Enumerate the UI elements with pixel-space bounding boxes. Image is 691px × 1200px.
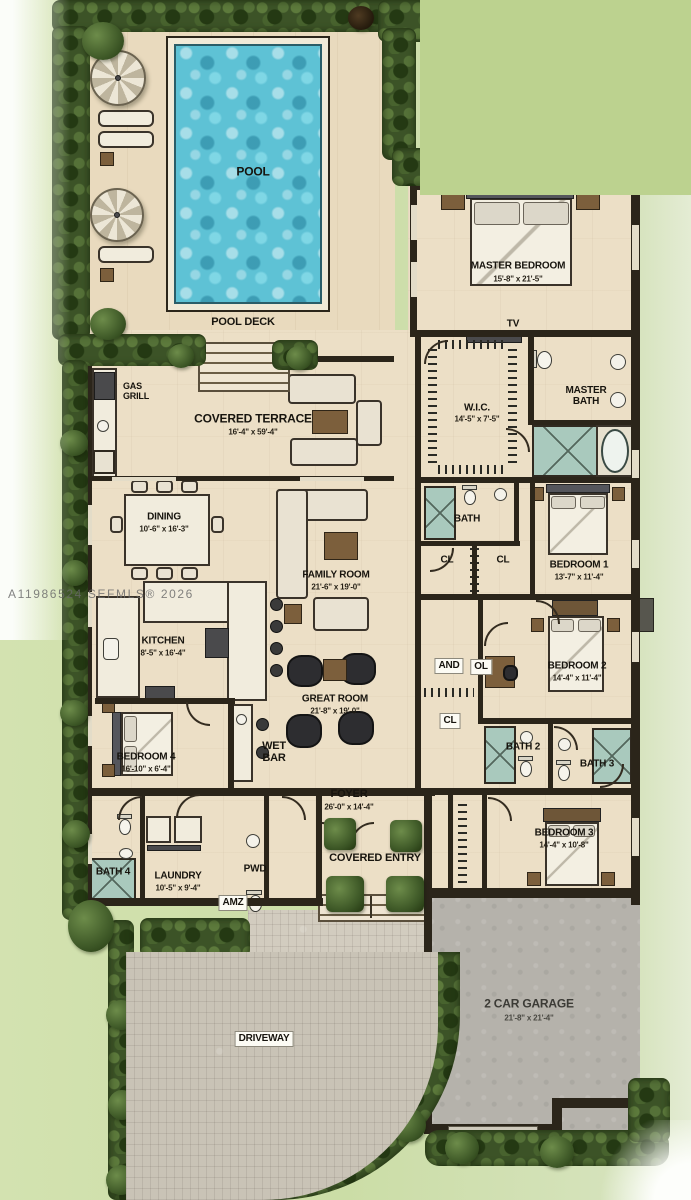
hedge-garage-corner	[628, 1078, 670, 1142]
window	[632, 225, 639, 270]
terrace-sofa	[290, 438, 358, 466]
window	[632, 818, 639, 856]
lounge-chair-3	[98, 246, 154, 263]
nightstand	[601, 872, 615, 886]
slider-door	[112, 477, 176, 481]
wall	[528, 420, 640, 425]
pillow	[580, 496, 605, 509]
terrace-chair	[356, 400, 382, 446]
nightstand	[102, 764, 115, 777]
pool-label: POOL	[236, 165, 269, 178]
wall	[448, 795, 453, 893]
bedroom3-label: BEDROOM 3	[535, 828, 594, 839]
slider-door	[300, 477, 364, 481]
wall	[548, 724, 553, 790]
dining-label: DINING	[147, 512, 181, 523]
dining-chair	[181, 480, 198, 493]
pillow	[578, 619, 601, 632]
lounge-chair-1	[98, 110, 154, 127]
cl-label-a: CL	[441, 555, 454, 566]
bedroom2-dims: 14'-4" x 11'-4"	[553, 675, 602, 684]
covered-terrace-label: COVERED TERRACE	[194, 412, 312, 425]
bush-garage-front-1	[445, 1132, 479, 1164]
floor-plan: AND OL CL	[0, 0, 691, 1200]
dining-chair	[181, 567, 198, 580]
lounge-chair-2	[98, 131, 154, 148]
bush-steps-left	[168, 344, 194, 368]
side-table-1	[100, 152, 114, 166]
great-room-table	[323, 659, 347, 681]
great-room-dims: 21'-8" x 19'-0"	[310, 708, 359, 717]
entry-planter	[326, 876, 364, 912]
window	[632, 540, 639, 568]
gas-grill-label: GAS GRILL	[123, 382, 149, 402]
bathtub	[601, 429, 629, 473]
swivel-chair	[286, 714, 322, 748]
wic-dims: 14'-5" x 7'-5"	[454, 416, 499, 425]
wet-bar-label: WET BAR	[262, 740, 286, 764]
bush-bath4-corner	[68, 900, 114, 952]
wall	[472, 546, 477, 594]
entry-planter	[386, 876, 424, 912]
nightstand	[441, 190, 465, 210]
dining-chair	[156, 480, 173, 493]
wall	[430, 788, 640, 795]
sink	[610, 392, 626, 408]
bath4-label: BATH 4	[96, 867, 130, 878]
bath2-label: BATH 2	[506, 742, 540, 753]
covered-terrace-dims: 16'-4" x 59'-4"	[228, 429, 277, 438]
bush-left-2	[62, 560, 88, 586]
kitchen-dims: 8'-5" x 16'-4"	[140, 650, 185, 659]
sink	[494, 488, 507, 501]
bush-garage-front-2	[540, 1136, 574, 1168]
foyer-label: FOYER	[331, 788, 368, 800]
dining-chair	[110, 516, 123, 533]
bar-stool	[256, 718, 269, 731]
pillow	[474, 202, 520, 225]
bath3-label: BATH 3	[580, 759, 614, 770]
wall	[264, 794, 269, 904]
toilet	[537, 351, 552, 369]
master-bedroom-label: MASTER BEDROOM	[471, 261, 565, 272]
wet-bar-sink	[236, 714, 247, 725]
toilet	[119, 819, 131, 835]
family-room-dims: 21'-6" x 19'-0"	[311, 584, 360, 593]
wall	[552, 1098, 640, 1108]
umbrella-2-pole	[114, 212, 120, 218]
covered-entry-label: COVERED ENTRY	[329, 852, 421, 864]
driveway-label: DRIVEWAY	[235, 1031, 294, 1047]
bedroom3-headboard	[543, 808, 601, 822]
wall	[415, 337, 421, 792]
mls-watermark: A11986524 SEFMLS® 2026	[8, 588, 194, 601]
swivel-chair	[287, 655, 323, 687]
terrace-table	[312, 410, 348, 434]
washer	[146, 816, 171, 843]
coffee-table	[324, 532, 358, 560]
bush-left-3	[60, 700, 88, 726]
tree-topright	[492, 0, 564, 46]
wall	[410, 330, 640, 337]
pwd-sink	[246, 834, 260, 848]
bedroom4-label: BEDROOM 4	[117, 752, 176, 763]
ol-closet-label: OL	[470, 659, 492, 675]
bush-steps-right	[286, 346, 312, 370]
laundry-label: LAUNDRY	[154, 871, 201, 882]
wic-hanger-rod	[438, 340, 506, 349]
nightstand	[607, 618, 620, 632]
bath4-sink	[119, 848, 133, 859]
wall	[85, 788, 435, 796]
hedge-above-master	[392, 148, 638, 186]
wall	[514, 483, 519, 543]
pillow	[124, 716, 137, 742]
bar-stool	[270, 620, 283, 633]
wall	[415, 477, 640, 483]
window	[632, 450, 639, 478]
sectional-sofa-left	[276, 489, 308, 599]
pillow	[523, 202, 569, 225]
bar-stool	[270, 642, 283, 655]
bar-stool	[270, 664, 283, 677]
laundry-counter	[147, 845, 201, 851]
bush-top-planter	[348, 6, 374, 30]
bedroom2-headboard	[552, 600, 598, 616]
hedge-connector	[382, 28, 416, 160]
bush-deck-palm	[90, 308, 126, 340]
sink	[610, 354, 626, 370]
bar-stool	[270, 598, 283, 611]
bush-left-1	[60, 430, 88, 456]
toilet	[558, 765, 570, 781]
wic-hanger-rod	[438, 465, 506, 474]
laundry-dims: 10'-5" x 9'-4"	[155, 885, 200, 894]
nightstand	[527, 872, 541, 886]
side-table-2	[100, 268, 114, 282]
and-closet-label: AND	[434, 658, 463, 674]
bedroom3-dims: 14'-4" x 10'-8"	[539, 842, 588, 851]
driveway-surface	[126, 952, 438, 1200]
dryer	[174, 816, 202, 843]
bath-label: BATH	[454, 514, 480, 525]
bedroom1-label: BEDROOM 1	[550, 560, 609, 571]
master-bath-label: MASTER BATH	[565, 385, 606, 407]
dining-chair	[131, 567, 148, 580]
wall	[228, 702, 234, 792]
master-shower	[532, 425, 604, 477]
terrace-sink	[97, 420, 109, 432]
pillow	[551, 496, 576, 509]
wall	[528, 337, 534, 425]
tv-label: TV	[507, 319, 519, 330]
wall	[420, 888, 640, 898]
entry-planter	[324, 818, 356, 850]
master-bedroom-dims: 15'-8" x 21'-5"	[493, 276, 542, 285]
dining-chair	[156, 567, 173, 580]
dining-chair	[211, 516, 224, 533]
garage-label: 2 CAR GARAGE	[484, 997, 574, 1010]
window	[411, 205, 417, 240]
hedge-pool-left	[52, 26, 90, 340]
bedroom4-dims: 16'-10" x 6'-4"	[121, 766, 170, 775]
toilet	[464, 490, 476, 505]
loveseat	[313, 597, 369, 631]
bedroom1-headboard	[546, 484, 610, 493]
terrace-cabinet	[93, 450, 115, 474]
range	[205, 628, 229, 658]
wall	[95, 698, 235, 704]
wall	[482, 795, 487, 893]
desk-chair	[503, 665, 518, 681]
amz-closet-label: AMZ	[218, 895, 247, 911]
closet-hanger-rod	[424, 688, 474, 697]
kitchen-label: KITCHEN	[141, 636, 184, 647]
nightstand	[576, 190, 600, 210]
bath2-shower	[484, 726, 516, 784]
bedroom1-dims: 13'-7" x 11'-4"	[555, 574, 604, 583]
garage-dims: 21'-8" x 21'-4"	[504, 1015, 553, 1024]
wic-label: W.I.C.	[464, 403, 490, 414]
bush-pool-corner	[82, 22, 124, 60]
pwd-label: PWD	[244, 864, 267, 875]
dining-chair	[131, 480, 148, 493]
toilet	[520, 761, 532, 777]
grill	[94, 372, 115, 400]
family-room-label: FAMILY ROOM	[302, 570, 369, 581]
bedroom2-label: BEDROOM 2	[548, 661, 607, 672]
hall-closet-label: CL	[440, 713, 461, 729]
window	[632, 632, 639, 662]
wall	[420, 541, 520, 546]
wall	[530, 483, 535, 595]
entry-planter	[390, 820, 422, 852]
bedroom3-closet-rod	[458, 800, 467, 890]
great-room-label: GREAT ROOM	[302, 694, 368, 705]
kitchen-sink	[103, 638, 119, 660]
wall	[420, 594, 640, 600]
foyer-dims: 26'-0" x 14'-4"	[324, 804, 373, 813]
terrace-sofa	[288, 374, 356, 404]
nightstand	[612, 487, 625, 501]
wall	[316, 794, 322, 906]
wall	[478, 718, 640, 724]
umbrella-1-pole	[115, 75, 121, 81]
entry-steps-arrow	[370, 896, 372, 918]
cl-label-b: CL	[497, 555, 510, 566]
window	[411, 262, 417, 297]
side-table	[284, 604, 302, 624]
dining-dims: 10'-6" x 16'-3"	[139, 526, 188, 535]
bath4-shower	[88, 858, 136, 900]
bath-shower	[424, 486, 456, 540]
kitchen-counter-right	[227, 581, 267, 701]
pool-deck-label: POOL DECK	[211, 316, 274, 328]
wall	[85, 898, 323, 906]
bush-left-4	[62, 820, 90, 848]
